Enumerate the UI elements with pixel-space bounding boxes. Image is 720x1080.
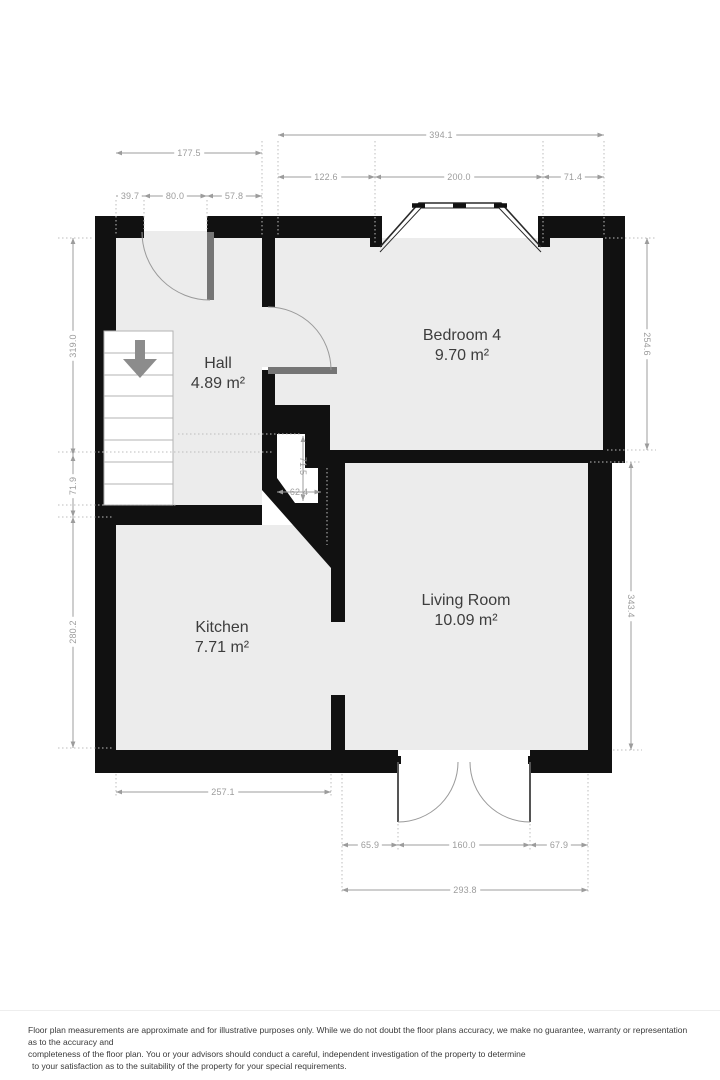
hall-bedroom-wall-upper (262, 238, 275, 307)
top-wall-middle (207, 216, 382, 238)
floor-areas (116, 231, 603, 752)
french-doors (398, 762, 530, 822)
entry-door-leaf (207, 232, 214, 300)
bedroom4-label: Bedroom 4 9.70 m² (423, 326, 501, 366)
kitchen-area: 7.71 m² (195, 638, 249, 658)
disclaimer-line-2: completeness of the floor plan. You or y… (28, 1048, 692, 1060)
hall-bedroom-wall-lower (262, 370, 275, 405)
entry-door-floor (144, 231, 207, 238)
floor-plan-page: Hall 4.89 m² Bedroom 4 9.70 m² Kitchen 7… (0, 0, 720, 1080)
disclaimer-line-3: to your satisfaction as to the suitabili… (28, 1060, 692, 1072)
dimension-left-kitchen: 280.2 (68, 617, 78, 647)
bottom-wall-left (95, 750, 398, 773)
dimension-bottom-kitchen: 257.1 (208, 787, 238, 797)
dimension-right-bedroom: 254.6 (642, 329, 652, 359)
dimension-top-bay-right: 71.4 (561, 172, 585, 182)
dimension-top-overall-left: 177.5 (174, 148, 204, 158)
hall-kitchen-wall (95, 505, 262, 525)
living-room-name: Living Room (422, 591, 511, 611)
dimension-left-hall: 319.0 (68, 331, 78, 361)
bedroom4-door-floor (262, 307, 275, 367)
dimension-top-entry-door: 80.0 (163, 191, 187, 201)
hall-label: Hall 4.89 m² (191, 354, 245, 394)
dimension-cupboard-width: 62.4 (287, 487, 311, 497)
dimension-bottom-living-right: 67.9 (547, 840, 571, 850)
dimension-bottom-living-overall: 293.8 (450, 885, 480, 895)
footer-divider (0, 1010, 720, 1011)
kitchen-living-opening-floor (331, 622, 345, 695)
french-door-left-arc (398, 762, 458, 822)
floor-plan-drawing (0, 0, 720, 1080)
bedroom4-name: Bedroom 4 (423, 326, 501, 346)
dimension-bottom-doors: 160.0 (449, 840, 479, 850)
dimension-top-entry-left: 39.7 (118, 191, 142, 201)
dimension-top-overall-right: 394.1 (426, 130, 456, 140)
kitchen-label: Kitchen 7.71 m² (195, 618, 249, 658)
living-right-wall (588, 463, 612, 773)
disclaimer-text: Floor plan measurements are approximate … (28, 1024, 692, 1072)
bedroom4-area: 9.70 m² (423, 346, 501, 366)
living-room-area: 10.09 m² (422, 611, 511, 631)
top-wall-left (95, 216, 144, 238)
dimension-top-entry-right: 57.8 (222, 191, 246, 201)
bottom-wall-right (530, 750, 612, 773)
dimension-top-bay-left: 122.6 (311, 172, 341, 182)
bedroom-living-wall (330, 450, 625, 463)
dimension-left-mid: 71.9 (68, 474, 78, 498)
dimension-cupboard-height: 71.5 (298, 454, 308, 478)
staircase (104, 331, 173, 505)
bedroom4-right-wall (603, 216, 625, 463)
hall-name: Hall (191, 354, 245, 374)
dimension-bottom-living-left: 65.9 (358, 840, 382, 850)
disclaimer-line-1: Floor plan measurements are approximate … (28, 1024, 692, 1048)
french-door-right-arc (470, 762, 530, 822)
dimension-right-living: 343.4 (626, 591, 636, 621)
kitchen-name: Kitchen (195, 618, 249, 638)
hall-area: 4.89 m² (191, 374, 245, 394)
bedroom4-door-leaf (268, 367, 337, 374)
dimension-top-bay: 200.0 (444, 172, 474, 182)
living-room-label: Living Room 10.09 m² (422, 591, 511, 631)
